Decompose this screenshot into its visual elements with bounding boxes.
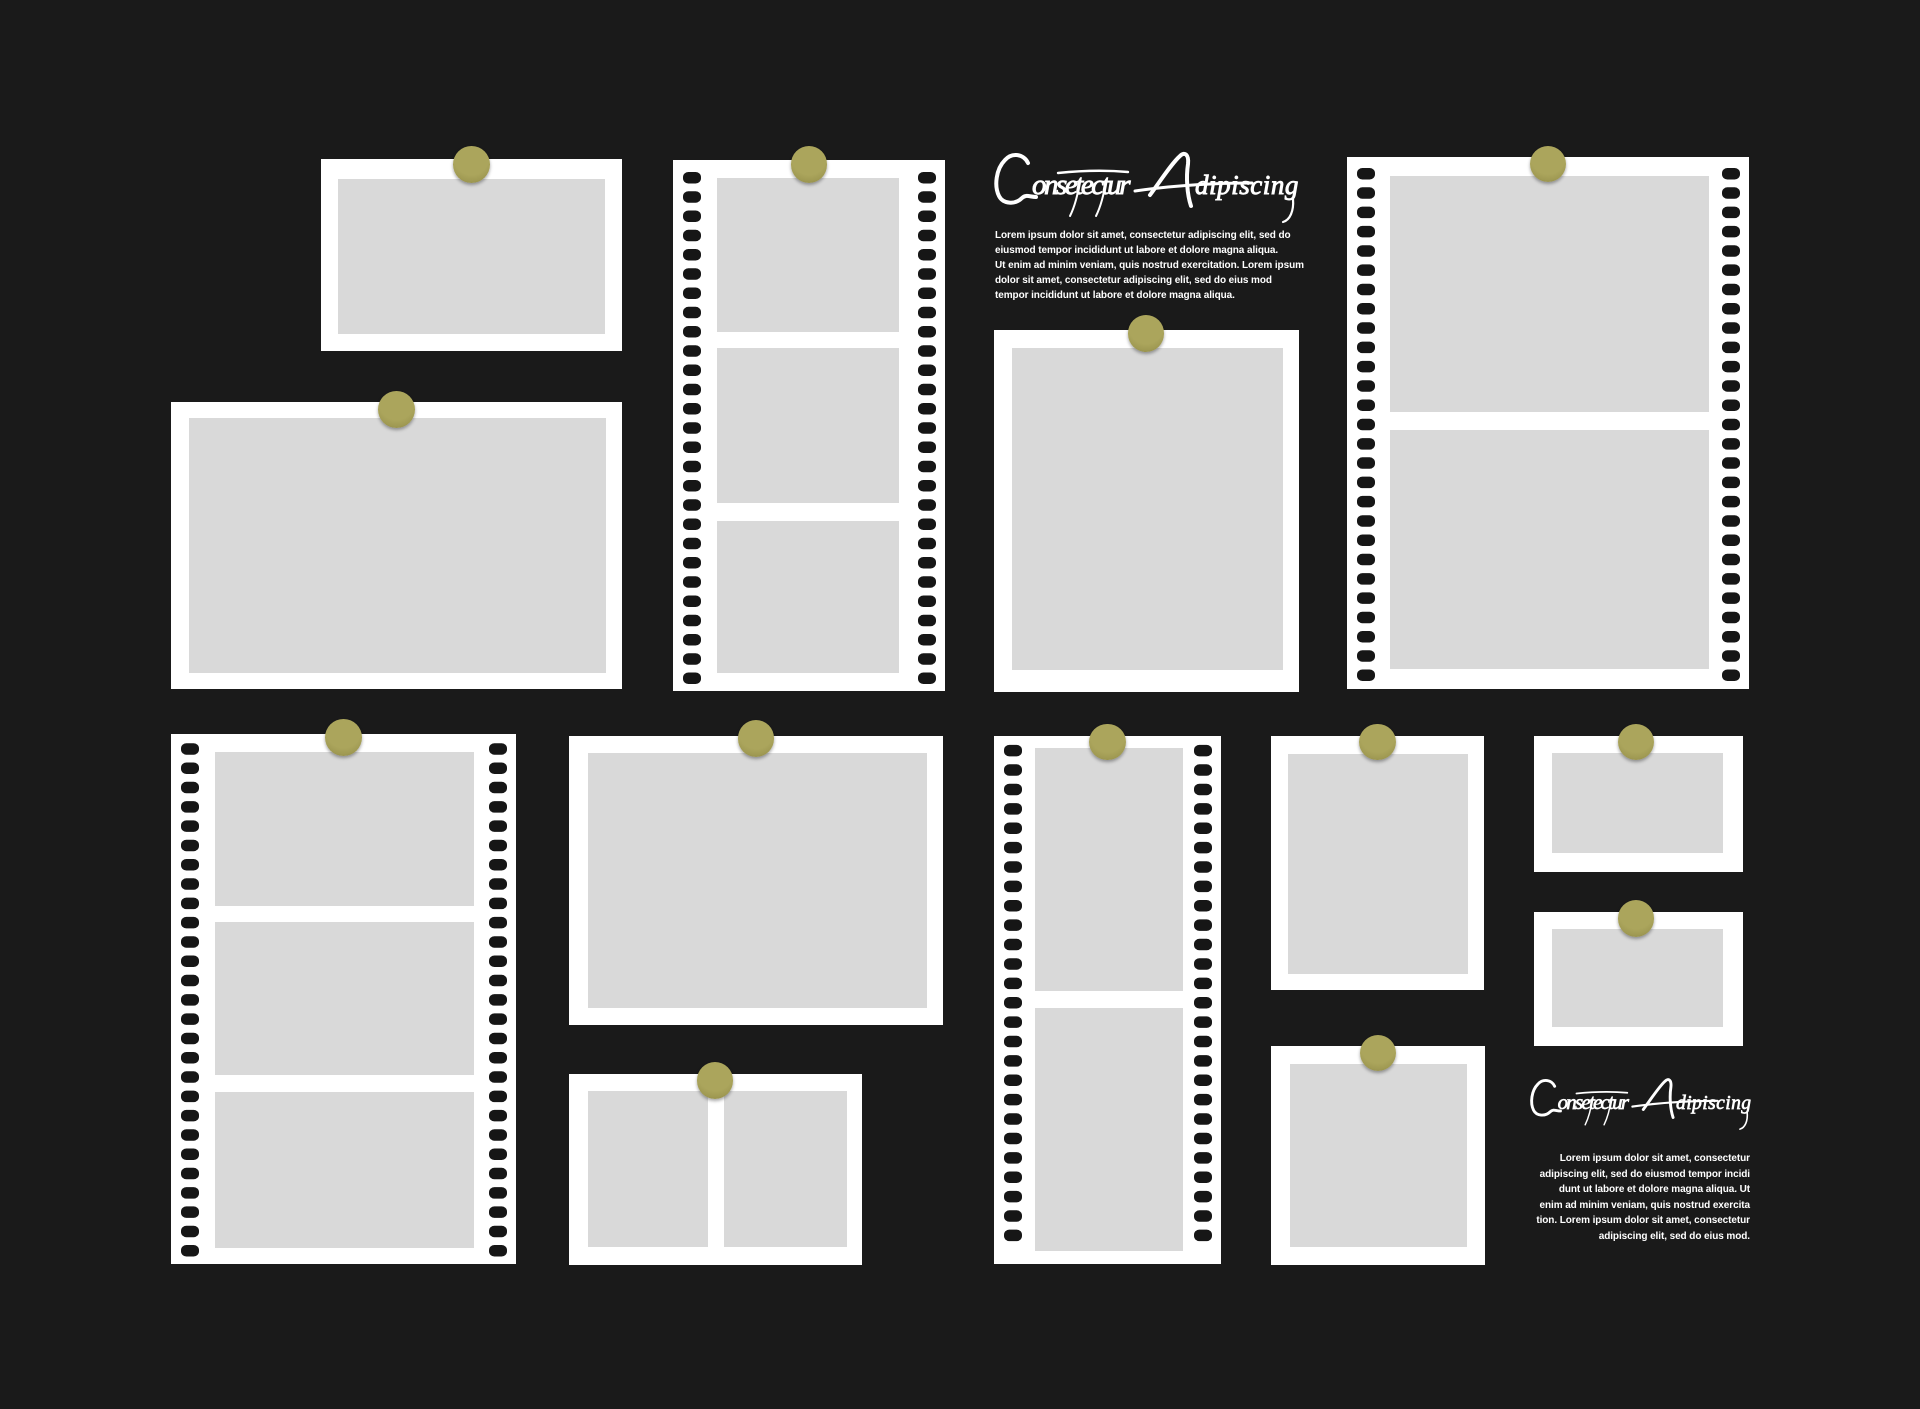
svg-text:onsetectur: onsetectur <box>1032 169 1131 201</box>
svg-text:onsetectur: onsetectur <box>1557 1089 1629 1113</box>
svg-text:dipiscing: dipiscing <box>1195 170 1299 200</box>
svg-text:dipiscing: dipiscing <box>1675 1092 1751 1113</box>
